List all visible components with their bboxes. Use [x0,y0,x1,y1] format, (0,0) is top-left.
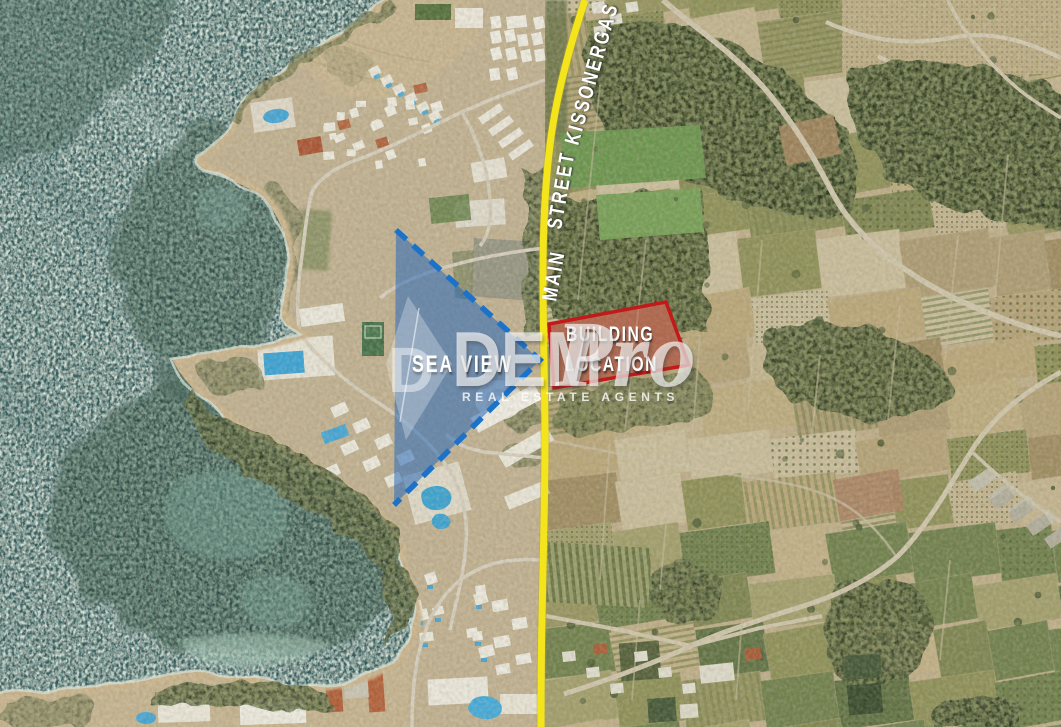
svg-text:D: D [388,334,434,406]
svg-text:REAL ESTATE AGENTS: REAL ESTATE AGENTS [462,390,679,404]
